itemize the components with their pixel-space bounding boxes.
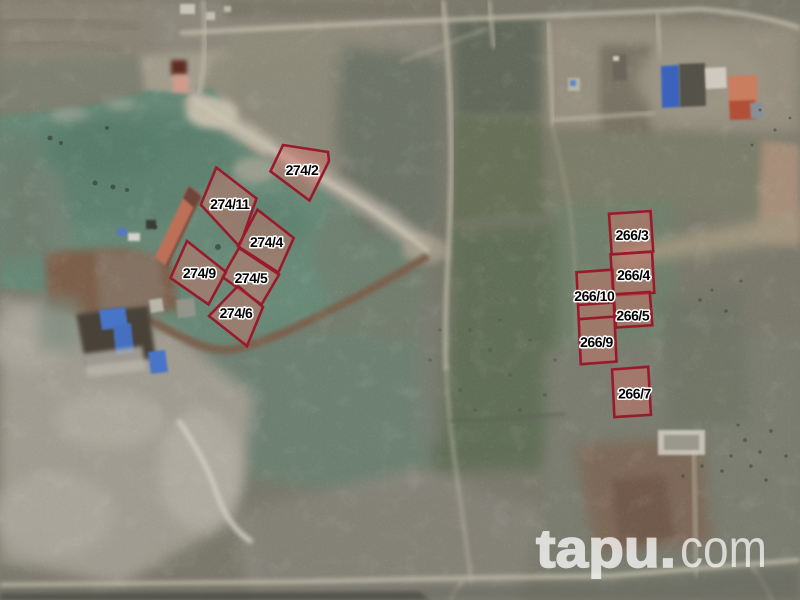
svg-text:266/9: 266/9: [580, 334, 613, 350]
svg-text:274/4: 274/4: [250, 234, 283, 250]
svg-text:266/3: 266/3: [616, 227, 649, 243]
svg-text:274/9: 274/9: [183, 265, 216, 281]
svg-text:266/5: 266/5: [616, 308, 649, 324]
svg-text:tapu.: tapu.: [536, 519, 676, 579]
svg-text:274/11: 274/11: [210, 196, 250, 212]
svg-text:com: com: [680, 519, 767, 579]
svg-text:266/10: 266/10: [574, 288, 615, 304]
svg-text:266/7: 266/7: [618, 386, 651, 402]
svg-text:274/6: 274/6: [220, 305, 253, 321]
svg-text:266/4: 266/4: [617, 267, 650, 283]
svg-text:274/2: 274/2: [286, 162, 319, 178]
svg-text:274/5: 274/5: [235, 270, 268, 286]
